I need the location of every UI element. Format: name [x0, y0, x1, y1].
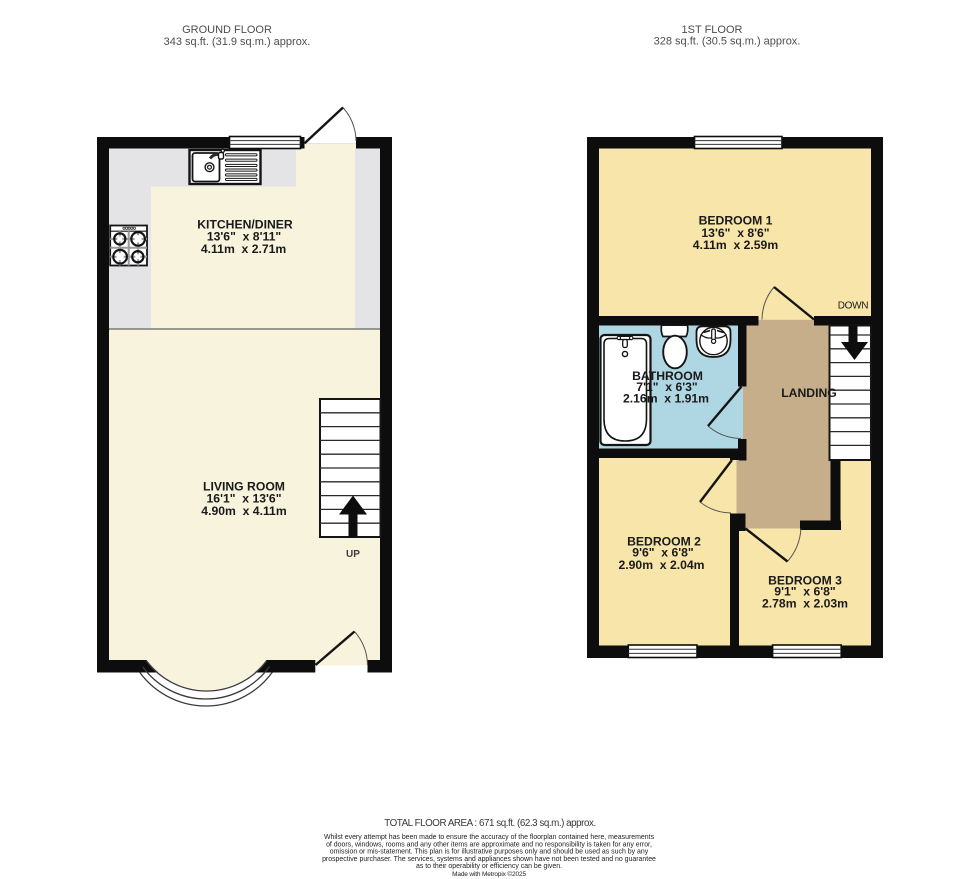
svg-text:UP: UP [346, 549, 360, 560]
svg-text:prospective purchaser. The ser: prospective purchaser. The services, sys… [322, 856, 656, 863]
svg-text:Whilst every attempt has been: Whilst every attempt has been made to en… [324, 834, 655, 841]
svg-text:4.90m x 4.11m: 4.90m x 4.11m [201, 504, 287, 518]
svg-text:328 sq.ft. (30.5 sq.m.) approx: 328 sq.ft. (30.5 sq.m.) approx. [654, 36, 801, 48]
svg-text:2.90m x 2.04m: 2.90m x 2.04m [618, 558, 704, 572]
svg-text:2.78m x 2.03m: 2.78m x 2.03m [762, 597, 848, 611]
svg-text:omission or mis-statement. Thi: omission or mis-statement. This plan is … [330, 849, 649, 856]
svg-text:as to their operability or eff: as to their operability or efficiency ca… [416, 863, 562, 870]
svg-text:343 sq.ft. (31.9 sq.m.) approx: 343 sq.ft. (31.9 sq.m.) approx. [164, 36, 311, 48]
svg-text:4.11m x 2.59m: 4.11m x 2.59m [693, 238, 779, 252]
svg-text:2.16m x 1.91m: 2.16m x 1.91m [623, 392, 709, 406]
svg-text:LANDING: LANDING [781, 386, 837, 400]
svg-text:1ST FLOOR: 1ST FLOOR [682, 24, 743, 36]
svg-text:4.11m x 2.71m: 4.11m x 2.71m [201, 242, 287, 256]
svg-text:GROUND FLOOR: GROUND FLOOR [182, 24, 272, 36]
svg-text:of doors, windows, rooms and a: of doors, windows, rooms and any other i… [326, 841, 652, 848]
svg-text:Made with Metropix ©2025: Made with Metropix ©2025 [452, 870, 526, 878]
svg-text:DOWN: DOWN [838, 301, 869, 312]
svg-text:TOTAL FLOOR AREA : 671 sq.ft.: TOTAL FLOOR AREA : 671 sq.ft. (62.3 sq.m… [384, 818, 595, 829]
